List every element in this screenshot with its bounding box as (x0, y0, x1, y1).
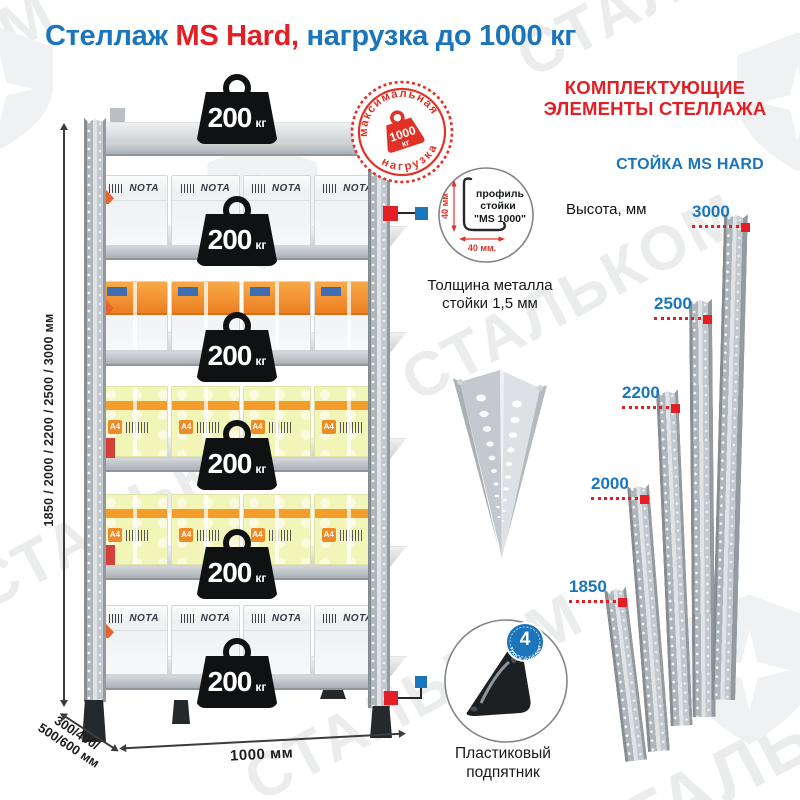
shelf-load-unit: кг (255, 680, 266, 694)
shelf-load-value: 200 (208, 224, 252, 256)
profile-label-line1: профиль (476, 188, 524, 200)
page-title: Стеллаж MS Hard, нагрузка до 1000 кг (45, 20, 576, 53)
paper-size-label: A4 (179, 420, 193, 434)
component-post-2500 (689, 299, 716, 717)
height-marker (640, 495, 649, 504)
callout-connector (396, 697, 422, 699)
thickness-line1: Толщина металла (427, 277, 552, 294)
shelf-load-value: 200 (208, 102, 252, 134)
shelf-load-weight: 200кг (196, 196, 278, 266)
paper-size-label: A4 (322, 528, 336, 542)
barcode-icon (181, 184, 196, 193)
max-load-stamp: максимальная нагрузка 1000 кг (340, 70, 464, 194)
product-box: NOTA (100, 175, 168, 246)
title-product-name: MS Hard, (175, 20, 298, 52)
title-load-suffix: нагрузка до 1000 кг (299, 20, 576, 52)
barcode-icon (340, 530, 362, 541)
included-count-badge: 4 штуки в комплекте (504, 621, 546, 663)
shelf-load-weight: 200кг (196, 312, 278, 382)
product-box (100, 281, 168, 351)
components-subheader: СТОЙКА MS HARD (585, 156, 795, 174)
profile-callout-marker (383, 206, 398, 221)
plastic-foot (172, 700, 190, 724)
barcode-icon (340, 422, 362, 433)
post-height-label: 3000 (692, 202, 739, 228)
plastic-foot (320, 690, 346, 699)
foot-callout-marker (415, 676, 427, 688)
width-dimension-label: 1000 мм (230, 744, 294, 764)
shelf-load-weight: 200кг (196, 420, 278, 490)
box-brand-label: NOTA (201, 183, 231, 194)
foot-caption-line1: Пластиковый (455, 745, 551, 762)
barcode-icon (126, 422, 148, 433)
box-lid (244, 282, 310, 315)
post-height-value: 2200 (622, 383, 669, 409)
box-label (250, 287, 270, 296)
shelf-load-unit: кг (255, 116, 266, 130)
barcode-icon (323, 614, 338, 623)
post-height-value: 1850 (569, 577, 616, 603)
box-stripe (244, 509, 310, 518)
barcode-icon (109, 614, 124, 623)
profile-label-line3: "MS 1000" (474, 213, 526, 225)
post-height-label: 2500 (654, 294, 701, 320)
metal-thickness-note: Толщина металла стойки 1,5 мм (415, 277, 565, 313)
box-stripe (172, 509, 238, 518)
post-height-value: 3000 (692, 202, 739, 228)
box-label (321, 287, 341, 296)
barcode-icon (126, 530, 148, 541)
box-label (107, 287, 127, 296)
barcode-icon (252, 184, 267, 193)
shelf-load-unit: кг (255, 354, 266, 368)
shelf-load-weight: 200кг (196, 74, 278, 144)
paper-size-label: A4 (322, 420, 336, 434)
post-height-label: 2200 (622, 383, 669, 409)
profile-label-line2: стойки (480, 200, 515, 212)
thickness-line2: стойки 1,5 мм (442, 295, 538, 312)
shelf-load-unit: кг (255, 462, 266, 476)
shelf-load-unit: кг (255, 238, 266, 252)
box-label (178, 287, 198, 296)
shelf-load-weight: 200кг (196, 638, 278, 708)
plastic-foot-caption: Пластиковый подпятник (428, 744, 578, 782)
profile-callout-marker (415, 207, 428, 220)
shelf-load-value: 200 (208, 557, 252, 589)
barcode-icon (323, 184, 338, 193)
box-brand-label: NOTA (272, 183, 302, 194)
box-brand-label: NOTA (129, 613, 159, 624)
rack-front-post (84, 118, 106, 702)
shelf-load-unit: кг (255, 571, 266, 585)
foot-caption-line2: подпятник (466, 764, 540, 781)
box-stripe (101, 509, 167, 518)
barcode-icon (252, 614, 267, 623)
paper-size-label: A4 (108, 420, 122, 434)
height-dimension-line (63, 126, 65, 704)
components-header-line2: ЭЛЕМЕНТЫ СТЕЛЛАЖА (544, 98, 767, 119)
box-stripe (244, 401, 310, 410)
shelf-load-value: 200 (208, 340, 252, 372)
box-stripe (101, 401, 167, 410)
box-lid (172, 282, 238, 315)
height-marker (741, 223, 750, 232)
box-brand-label: NOTA (272, 613, 302, 624)
height-dimension-label: 1850 / 2000 / 2200 / 2500 / 3000 мм (42, 313, 56, 526)
shelf-load-value: 200 (208, 666, 252, 698)
foot-callout-marker (384, 691, 398, 705)
post-height-label: 1850 (569, 577, 616, 603)
callout-connector (420, 688, 422, 699)
profile-dim-vertical: 40 мм (440, 193, 450, 219)
paper-size-label: A4 (179, 528, 193, 542)
height-marker (618, 598, 627, 607)
corner-post-perspective (450, 366, 550, 562)
barcode-icon (181, 614, 196, 623)
badge-count: 4 (520, 629, 531, 650)
product-box: NOTA (100, 605, 168, 675)
shelf-load-weight: 200кг (196, 529, 278, 599)
profile-dim-horizontal: 40 мм. (468, 243, 496, 253)
components-header-line1: КОМПЛЕКТУЮЩИЕ (565, 77, 745, 98)
barcode-icon (109, 184, 124, 193)
title-product-prefix: Стеллаж (45, 20, 175, 52)
height-marker (671, 404, 680, 413)
box-stripe (172, 401, 238, 410)
shelf-load-value: 200 (208, 448, 252, 480)
components-header: КОМПЛЕКТУЮЩИЕ ЭЛЕМЕНТЫ СТЕЛЛАЖА (535, 77, 775, 119)
post-height-label: 2000 (591, 474, 638, 500)
infographic-canvas: СТАЛЬКОМ СТАЛЬКОМ СТАЛЬКОМ СТАЛЬКОМ СТАЛ… (0, 0, 800, 800)
box-brand-label: NOTA (201, 613, 231, 624)
height-marker (703, 315, 712, 324)
box-brand-label: NOTA (129, 183, 159, 194)
post-height-value: 2500 (654, 294, 701, 320)
height-axis-label: Высота, мм (566, 201, 646, 218)
paper-size-label: A4 (108, 528, 122, 542)
post-height-value: 2000 (591, 474, 638, 500)
